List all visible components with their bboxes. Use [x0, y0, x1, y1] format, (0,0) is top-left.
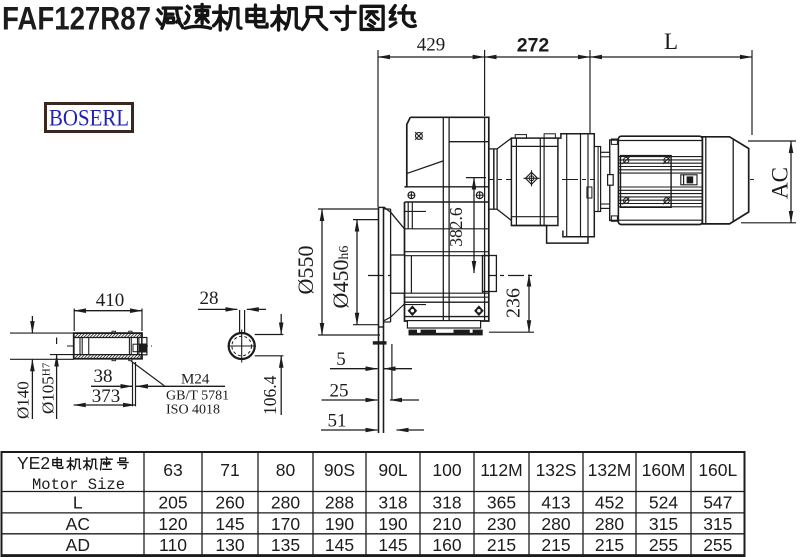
svg-text:215: 215 [595, 535, 624, 555]
svg-text:28: 28 [200, 288, 219, 309]
svg-text:413: 413 [541, 493, 570, 513]
svg-text:5: 5 [336, 349, 346, 370]
svg-text:210: 210 [432, 514, 461, 534]
svg-text:132S: 132S [536, 460, 577, 480]
svg-text:Ø450h6: Ø450h6 [328, 246, 353, 309]
svg-text:215: 215 [541, 535, 570, 555]
svg-text:90L: 90L [378, 460, 407, 480]
svg-text:160L: 160L [698, 460, 737, 480]
svg-text:255: 255 [649, 535, 678, 555]
svg-text:288: 288 [325, 493, 354, 513]
svg-text:205: 205 [158, 493, 187, 513]
svg-text:106.4: 106.4 [260, 375, 280, 415]
svg-text:Motor Size: Motor Size [32, 476, 125, 494]
svg-text:71: 71 [220, 460, 239, 480]
svg-text:80: 80 [276, 460, 296, 480]
svg-text:190: 190 [378, 514, 407, 534]
svg-text:GB/T 5781: GB/T 5781 [166, 389, 229, 404]
svg-text:38: 38 [94, 366, 113, 387]
svg-text:AC: AC [66, 514, 90, 534]
svg-text:130: 130 [215, 535, 244, 555]
svg-text:373: 373 [92, 386, 121, 407]
svg-text:160M: 160M [642, 460, 686, 480]
svg-text:410: 410 [96, 290, 125, 311]
svg-text:318: 318 [378, 493, 407, 513]
svg-text:280: 280 [271, 493, 300, 513]
svg-text:112M: 112M [480, 460, 522, 480]
svg-text:145: 145 [325, 535, 354, 555]
svg-text:Ø105H7: Ø105H7 [39, 362, 58, 414]
svg-text:236: 236 [503, 288, 525, 318]
svg-text:452: 452 [595, 493, 624, 513]
svg-text:190: 190 [325, 514, 354, 534]
svg-text:255: 255 [703, 535, 732, 555]
svg-text:145: 145 [378, 535, 407, 555]
svg-text:25: 25 [330, 381, 349, 402]
svg-text:YE2: YE2 [17, 453, 50, 473]
svg-text:FAF127R87: FAF127R87 [2, 1, 151, 37]
svg-text:110: 110 [159, 535, 187, 555]
svg-text:ISO 4018: ISO 4018 [166, 403, 220, 418]
svg-text:L: L [73, 493, 83, 513]
svg-text:AD: AD [66, 535, 90, 555]
svg-text:280: 280 [595, 514, 624, 534]
svg-text:260: 260 [215, 493, 244, 513]
svg-text:365: 365 [487, 493, 516, 513]
svg-text:100: 100 [432, 460, 461, 480]
svg-text:272: 272 [517, 35, 550, 57]
svg-text:170: 170 [271, 514, 300, 534]
svg-text:L: L [664, 29, 678, 54]
svg-text:280: 280 [541, 514, 570, 534]
svg-text:547: 547 [703, 493, 732, 513]
svg-text:51: 51 [328, 411, 347, 432]
svg-text:AC: AC [768, 167, 793, 199]
svg-text:382.6: 382.6 [446, 207, 466, 247]
svg-text:Ø140: Ø140 [14, 381, 33, 419]
svg-text:315: 315 [703, 514, 732, 534]
svg-text:145: 145 [215, 514, 244, 534]
svg-text:135: 135 [271, 535, 300, 555]
svg-text:M24: M24 [181, 372, 210, 388]
svg-text:318: 318 [432, 493, 461, 513]
svg-text:90S: 90S [324, 460, 355, 480]
svg-text:315: 315 [649, 514, 678, 534]
svg-text:524: 524 [649, 493, 678, 513]
svg-text:Ø550: Ø550 [293, 246, 318, 295]
svg-text:132M: 132M [588, 460, 632, 480]
svg-text:429: 429 [417, 35, 446, 56]
svg-text:215: 215 [487, 535, 516, 555]
svg-text:230: 230 [487, 514, 516, 534]
svg-text:120: 120 [158, 514, 187, 534]
svg-text:160: 160 [432, 535, 461, 555]
svg-text:63: 63 [163, 460, 182, 480]
svg-text:BOSERL: BOSERL [49, 106, 129, 132]
